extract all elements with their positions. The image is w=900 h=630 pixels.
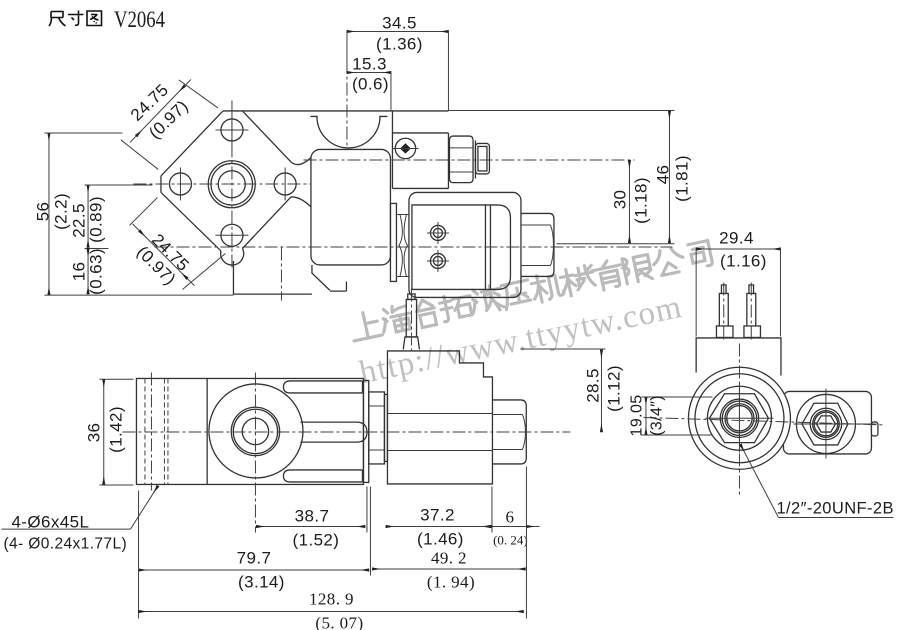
svg-text:6: 6 xyxy=(505,507,514,526)
svg-text:15.3: 15.3 xyxy=(352,54,387,73)
svg-text:56: 56 xyxy=(33,202,52,222)
svg-text:46: 46 xyxy=(653,165,672,185)
svg-text:79.7: 79.7 xyxy=(237,548,272,567)
svg-text:37.2: 37.2 xyxy=(420,505,455,524)
svg-text:28.5: 28.5 xyxy=(583,368,602,403)
svg-text:1/2″-20UNF-2B: 1/2″-20UNF-2B xyxy=(776,499,893,517)
svg-text:(1.12): (1.12) xyxy=(604,365,623,412)
svg-text:49. 2: 49. 2 xyxy=(431,548,467,567)
svg-text:(1.52): (1.52) xyxy=(293,530,340,549)
svg-text:34.5: 34.5 xyxy=(382,13,417,32)
svg-text:4-Ø6x45L: 4-Ø6x45L xyxy=(11,512,89,531)
svg-text:(2.2): (2.2) xyxy=(51,193,70,230)
svg-text:(3.14): (3.14) xyxy=(238,572,285,591)
svg-text:(0.89): (0.89) xyxy=(86,196,105,243)
svg-text:38.7: 38.7 xyxy=(295,506,330,525)
svg-text:(1.16): (1.16) xyxy=(720,251,767,270)
svg-text:(1.42): (1.42) xyxy=(106,406,125,453)
svg-text:19.05: 19.05 xyxy=(628,394,645,436)
svg-text:(0.6): (0.6) xyxy=(352,74,389,93)
svg-text:(4- Ø0.24x1.77L): (4- Ø0.24x1.77L) xyxy=(3,535,127,552)
svg-text:(5. 07): (5. 07) xyxy=(315,613,363,630)
svg-text:(1.46): (1.46) xyxy=(417,529,464,548)
svg-text:128. 9: 128. 9 xyxy=(309,589,354,608)
svg-text:36: 36 xyxy=(84,423,103,443)
svg-text:(3/4″): (3/4″) xyxy=(648,395,665,436)
svg-text:V2064: V2064 xyxy=(114,7,165,32)
svg-text:(1.18): (1.18) xyxy=(631,177,650,224)
svg-text:30: 30 xyxy=(610,190,629,210)
svg-text:(1.36): (1.36) xyxy=(376,34,423,53)
svg-text:(1.81): (1.81) xyxy=(672,155,691,202)
svg-text:(1. 94): (1. 94) xyxy=(427,572,475,591)
svg-text:(0. 24): (0. 24) xyxy=(493,532,528,547)
svg-text:(0.63): (0.63) xyxy=(86,248,105,295)
svg-text:29.4: 29.4 xyxy=(719,228,754,247)
